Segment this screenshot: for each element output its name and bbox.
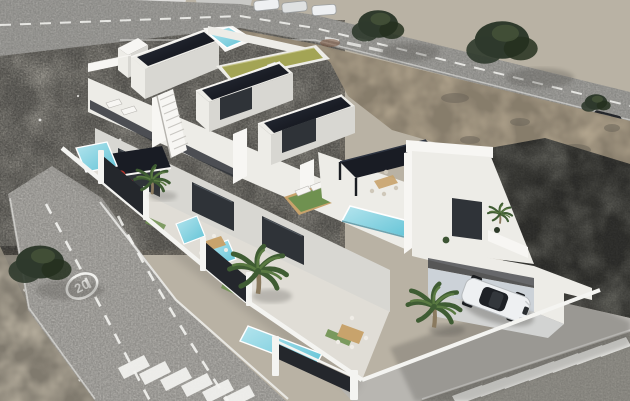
road-stain <box>320 39 340 47</box>
tree-shadow <box>36 280 104 300</box>
potted-plant <box>443 237 450 244</box>
potted-plant <box>494 227 500 233</box>
render-canvas: 20 <box>0 0 630 401</box>
tower-glass-door <box>452 198 482 240</box>
party-wall <box>233 128 247 184</box>
architectural-render: 20 <box>0 0 630 401</box>
